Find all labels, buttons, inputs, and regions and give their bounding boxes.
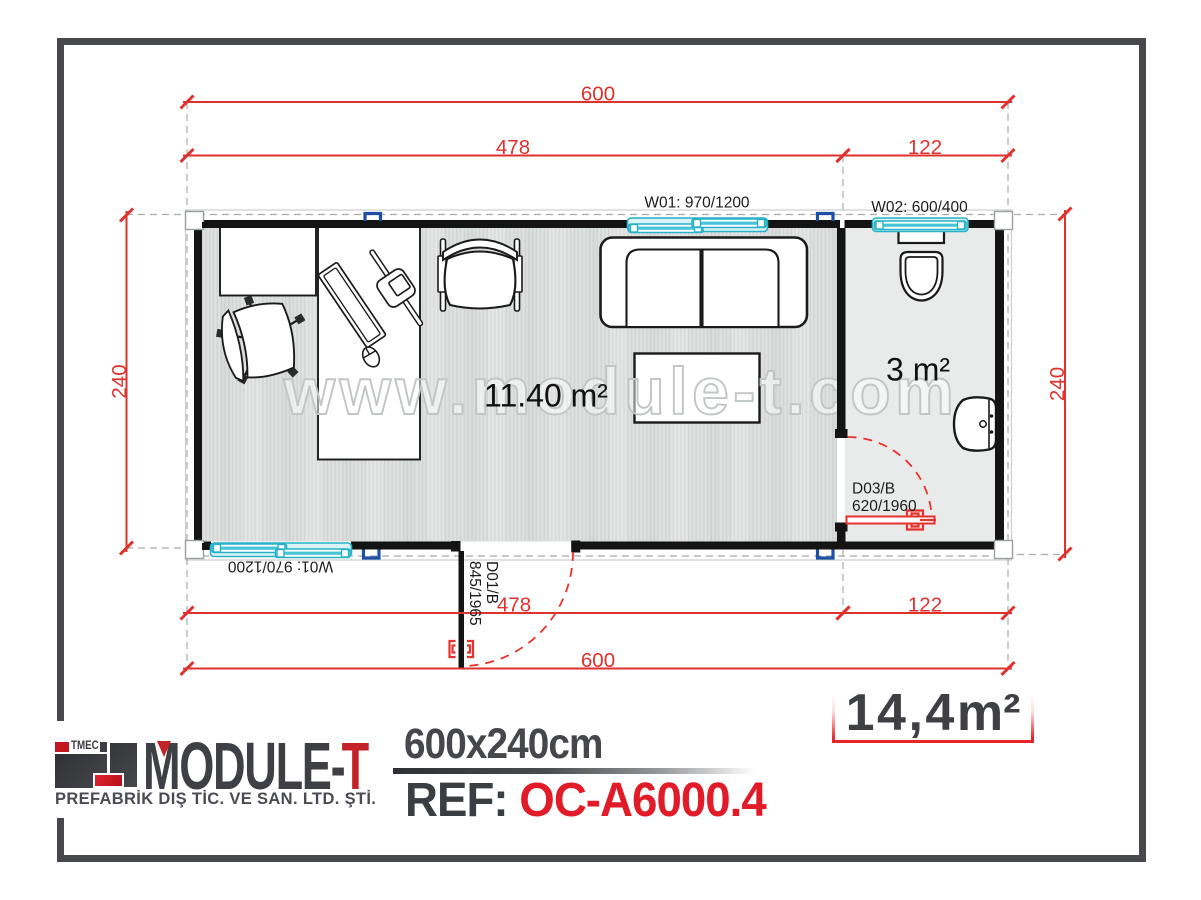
- svg-text:D01/B: D01/B: [483, 561, 500, 604]
- svg-text:240: 240: [108, 364, 131, 398]
- svg-text:122: 122: [908, 594, 942, 617]
- svg-text:W01: 970/1200: W01: 970/1200: [228, 558, 334, 575]
- svg-text:3 m²: 3 m²: [886, 352, 950, 388]
- svg-text:www.module-t.com: www.module-t.com: [283, 354, 959, 428]
- svg-text:11.40 m²: 11.40 m²: [484, 378, 608, 414]
- svg-text:W01: 970/1200: W01: 970/1200: [644, 195, 750, 212]
- svg-text:240: 240: [1046, 367, 1069, 401]
- svg-text:845/1965: 845/1965: [466, 561, 483, 626]
- svg-text:478: 478: [496, 136, 530, 159]
- svg-text:600: 600: [581, 649, 615, 672]
- svg-text:620/1960: 620/1960: [852, 498, 917, 515]
- svg-text:600: 600: [581, 83, 615, 106]
- svg-text:122: 122: [908, 136, 942, 159]
- svg-text:478: 478: [497, 594, 531, 617]
- svg-text:D03/B: D03/B: [852, 481, 895, 498]
- svg-text:W02: 600/400: W02: 600/400: [871, 199, 968, 216]
